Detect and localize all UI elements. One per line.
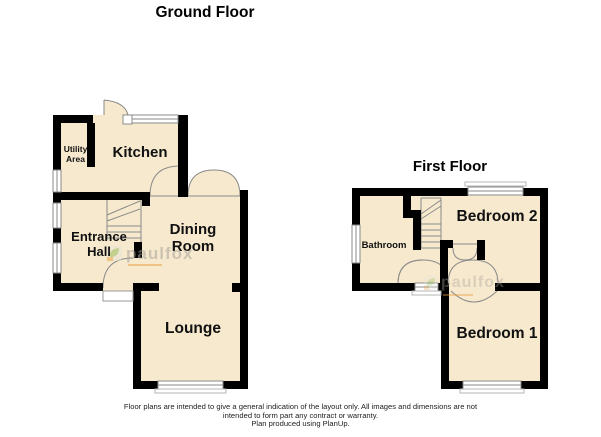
first-floor-title: First Floor	[370, 158, 530, 175]
room-label-kitchen: Kitchen	[100, 145, 180, 162]
footer-disclaimer: Floor plans are intended to give a gener…	[0, 403, 601, 429]
room-label-utility-area: Utility Area	[55, 145, 96, 164]
patio-door-swing	[188, 170, 240, 196]
room-label-entrance-hall: Entrance Hall	[68, 230, 130, 259]
watermark-icon-first	[424, 276, 438, 290]
room-label-bedroom-1: Bedroom 1	[447, 325, 547, 342]
watermark-first-floor: paulfox	[441, 274, 505, 292]
watermark-ground-floor: paulfox	[126, 244, 193, 264]
floor-plan-page: Ground Floor First Floor Utility Area Ki…	[0, 0, 601, 437]
room-label-bedroom-2: Bedroom 2	[447, 208, 547, 225]
footer-line-3: Plan produced using PlanUp.	[0, 420, 601, 429]
front-door-step	[103, 291, 133, 301]
room-label-lounge: Lounge	[153, 320, 233, 337]
watermark-tagline-first	[443, 294, 473, 296]
watermark-tagline-ground	[128, 264, 162, 266]
room-label-bathroom: Bathroom	[354, 241, 414, 252]
ground-floor-title: Ground Floor	[120, 4, 290, 22]
